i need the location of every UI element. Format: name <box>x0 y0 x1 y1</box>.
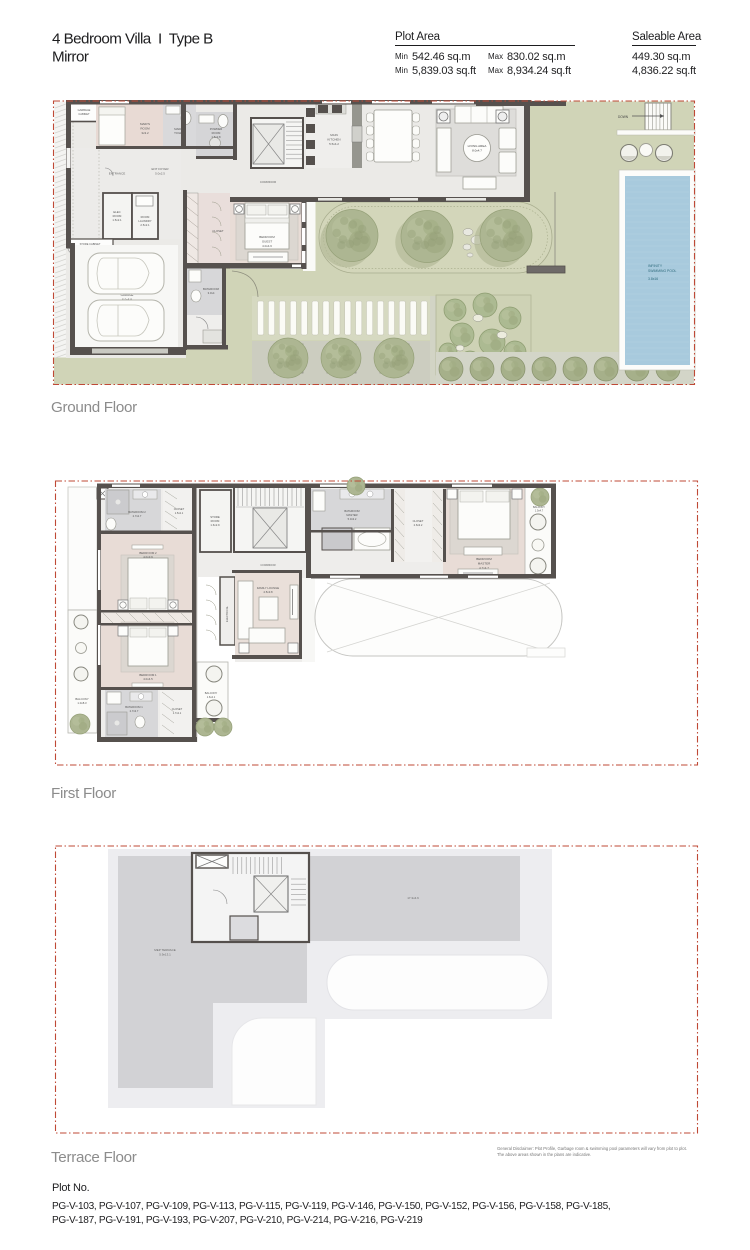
svg-text:4.0x4.5: 4.0x4.5 <box>143 677 153 681</box>
svg-text:KITCHEN: KITCHEN <box>327 138 340 142</box>
svg-text:542.46 sq.m: 542.46 sq.m <box>412 51 470 63</box>
svg-text:The above areas shown in the p: The above areas shown in the plans are i… <box>497 1152 591 1157</box>
svg-text:MASTER: MASTER <box>346 513 357 517</box>
svg-text:5.5x4.2: 5.5x4.2 <box>329 142 339 146</box>
svg-text:1.6x2.9: 1.6x2.9 <box>210 523 220 527</box>
svg-text:1.5x2.1: 1.5x2.1 <box>112 218 122 222</box>
svg-text:LIVING AREA: LIVING AREA <box>468 144 487 148</box>
svg-text:5,839.03 sq.ft: 5,839.03 sq.ft <box>412 65 476 77</box>
svg-text:CLOSET: CLOSET <box>212 229 223 233</box>
svg-text:BATHROOM 2: BATHROOM 2 <box>128 510 146 514</box>
svg-text:449.30 sq.m: 449.30 sq.m <box>632 51 690 63</box>
svg-text:2.5x2.1: 2.5x2.1 <box>140 223 150 227</box>
svg-text:3.8x16: 3.8x16 <box>648 277 658 281</box>
svg-text:830.02 sq.m: 830.02 sq.m <box>507 51 565 63</box>
svg-text:5.0x2.5: 5.0x2.5 <box>155 172 165 176</box>
svg-text:4.5x3.8: 4.5x3.8 <box>263 590 273 594</box>
svg-text:CABINET: CABINET <box>78 112 90 116</box>
svg-text:Min: Min <box>395 52 408 61</box>
svg-text:BEDROOM: BEDROOM <box>259 235 275 239</box>
svg-text:CLOSET: CLOSET <box>172 707 183 711</box>
svg-text:8.0x4.7: 8.0x4.7 <box>472 149 482 153</box>
svg-text:MAID'S: MAID'S <box>140 122 150 126</box>
svg-text:5.3x3.2: 5.3x3.2 <box>348 517 357 521</box>
svg-text:4,836.22 sq.ft: 4,836.22 sq.ft <box>632 65 696 77</box>
svg-text:Max: Max <box>488 52 503 61</box>
svg-text:CLOSET: CLOSET <box>174 507 185 511</box>
svg-text:2.7x3.7: 2.7x3.7 <box>130 709 139 713</box>
svg-text:1.0x8.3: 1.0x8.3 <box>77 701 87 705</box>
svg-text:BEDROOM: BEDROOM <box>476 557 492 561</box>
svg-text:2.6x3.2: 2.6x3.2 <box>414 523 423 527</box>
svg-text:BATHROOM 1: BATHROOM 1 <box>125 705 143 709</box>
svg-text:4.0x3.9: 4.0x3.9 <box>143 555 153 559</box>
svg-text:2.7x2.7: 2.7x2.7 <box>133 514 142 518</box>
svg-text:GARBAGE: GARBAGE <box>78 108 91 112</box>
svg-text:SWIMMING POOL: SWIMMING POOL <box>648 269 677 273</box>
svg-text:4 Bedroom Villa I Type B: 4 Bedroom Villa I Type B <box>52 31 213 48</box>
svg-text:INFINITY: INFINITY <box>648 264 663 268</box>
svg-text:1.5x2.1: 1.5x2.1 <box>175 511 184 515</box>
svg-text:BATHROOM: BATHROOM <box>344 509 360 513</box>
svg-text:CORRIDOR: CORRIDOR <box>260 180 277 184</box>
svg-text:CLOSET: CLOSET <box>413 519 424 523</box>
svg-text:Plot Area: Plot Area <box>395 31 441 43</box>
svg-text:ROOM: ROOM <box>140 127 150 131</box>
svg-text:1.7x2.1: 1.7x2.1 <box>173 711 182 715</box>
svg-text:1.6x4.1: 1.6x4.1 <box>207 695 216 699</box>
svg-text:4.0x4.6: 4.0x4.6 <box>262 244 272 248</box>
svg-text:1.5x4.7: 1.5x4.7 <box>535 510 544 513</box>
svg-text:ELECTRICAL: ELECTRICAL <box>225 605 229 622</box>
svg-text:3x3.2: 3x3.2 <box>141 131 149 135</box>
svg-text:First Floor: First Floor <box>51 785 116 802</box>
svg-text:MAIN: MAIN <box>330 133 338 137</box>
svg-text:Plot No.: Plot No. <box>52 1182 90 1194</box>
svg-text:BALCONY: BALCONY <box>205 691 218 695</box>
svg-text:GUEST: GUEST <box>262 240 273 244</box>
svg-text:MASTER: MASTER <box>478 562 491 566</box>
svg-text:DOWN: DOWN <box>618 115 629 119</box>
svg-text:CORRIDOR: CORRIDOR <box>260 563 275 567</box>
svg-text:1.5x2.8: 1.5x2.8 <box>211 135 221 139</box>
svg-text:Max: Max <box>488 66 503 75</box>
svg-text:ENTRANCE: ENTRANCE <box>109 172 126 176</box>
svg-text:Mirror: Mirror <box>52 49 89 66</box>
svg-text:8,934.24 sq.ft: 8,934.24 sq.ft <box>507 65 571 77</box>
svg-text:ENT FOYER: ENT FOYER <box>151 167 169 171</box>
svg-text:3.0x4: 3.0x4 <box>208 291 215 295</box>
svg-text:Terrace Floor: Terrace Floor <box>51 1149 137 1166</box>
svg-text:General Disclaimer: Plot Profi: General Disclaimer: Plot Profile, Garbag… <box>497 1146 687 1151</box>
svg-text:MEP TERRACE: MEP TERRACE <box>154 948 176 952</box>
svg-text:PG-V-187, PG-V-191, PG-V-193,: PG-V-187, PG-V-191, PG-V-193, PG-V-207, … <box>52 1215 423 1226</box>
svg-text:17.3x4.6: 17.3x4.6 <box>407 896 419 900</box>
svg-text:Ground Floor: Ground Floor <box>51 399 137 416</box>
svg-text:Min: Min <box>395 66 408 75</box>
svg-text:5.9x13.1: 5.9x13.1 <box>159 953 171 957</box>
svg-text:PG-V-103, PG-V-107, PG-V-109,: PG-V-103, PG-V-107, PG-V-109, PG-V-113, … <box>52 1201 610 1212</box>
svg-text:Saleable Area: Saleable Area <box>632 31 702 43</box>
